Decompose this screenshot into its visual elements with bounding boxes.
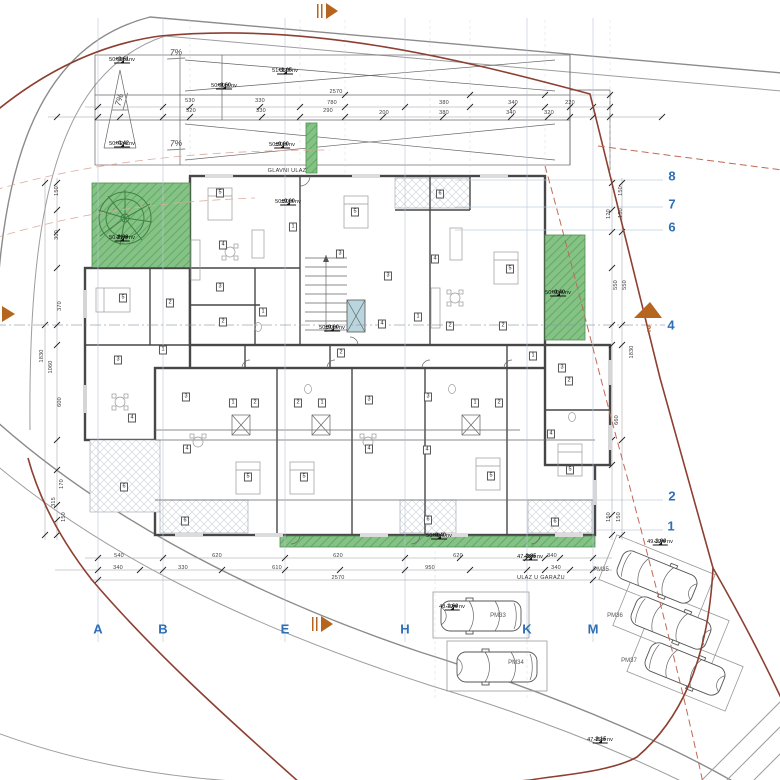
annotation-label: 2: [647, 325, 651, 334]
right-terrace: [545, 235, 585, 340]
room-number: 6: [436, 190, 444, 199]
room-number: 4: [378, 320, 386, 329]
dimension-label: 220: [565, 100, 575, 106]
dimension-label: 340: [551, 565, 561, 571]
room-number: 6: [424, 516, 432, 525]
room-number: 3: [558, 364, 566, 373]
entrance-green-strip: [306, 123, 317, 173]
dimension-label: 200: [379, 110, 389, 116]
floor-plan-drawing: [0, 0, 780, 780]
room-number: 3: [182, 393, 190, 402]
dimension-label: 950: [425, 565, 435, 571]
room-number: 6: [120, 483, 128, 492]
dimension-label: 620: [453, 553, 463, 559]
annotation-label: GLAVNI ULAZ: [268, 168, 307, 174]
room-number: 1: [229, 399, 237, 408]
room-number: 5: [566, 466, 574, 475]
parking-space-label: PM37: [621, 658, 637, 664]
dimension-label: 380: [439, 110, 449, 116]
site-floor-plan: ABEHKM8764217%7%7%+0.6150.93m nv+1.0551.…: [0, 0, 780, 780]
axis-label-B: B: [158, 622, 167, 637]
dimension-label: 1830: [39, 349, 45, 362]
parking-space-label: PM34: [508, 660, 524, 666]
dimension-label: 150: [54, 186, 60, 196]
tree-terrace: [92, 183, 190, 268]
room-number: 6: [551, 518, 559, 527]
building: [85, 123, 610, 547]
dimension-label: 290: [323, 108, 333, 114]
parking-space-label: PM35: [593, 567, 609, 573]
room-number: 1: [529, 352, 537, 361]
dimension-label: 660: [614, 415, 620, 425]
dimension-label: 2570: [329, 89, 342, 95]
room-number: 5: [351, 208, 359, 217]
axis-label-H: H: [400, 622, 409, 637]
dimension-label: 330: [256, 108, 266, 114]
parking-space-label: PM36: [607, 613, 623, 619]
room-number: 2: [565, 377, 573, 386]
room-number: 6: [181, 517, 189, 526]
dimension-label: 2570: [331, 575, 344, 581]
room-number: 1: [414, 313, 422, 322]
room-number: 1: [259, 308, 267, 317]
ramp-slope-label: 7%: [167, 138, 186, 151]
room-number: 2: [166, 299, 174, 308]
parking-space-label: PM33: [490, 613, 506, 619]
room-number: 2: [251, 399, 259, 408]
room-number: 2: [499, 322, 507, 331]
ramp-slope-label: 7%: [167, 47, 186, 60]
room-number: 4: [547, 430, 555, 439]
dimension-label: 300: [54, 230, 60, 240]
dimension-label: 610: [272, 565, 282, 571]
room-number: 5: [216, 189, 224, 198]
room-number: 5: [487, 472, 495, 481]
dimension-label: 540: [114, 553, 124, 559]
dimension-label: 1060: [48, 360, 54, 373]
room-number: 3: [114, 356, 122, 365]
room-number: 4: [128, 414, 136, 423]
axis-label-4: 4: [667, 318, 674, 333]
dimension-label: 150: [618, 186, 624, 196]
room-number: 4: [423, 446, 431, 455]
dimension-label: 340: [506, 110, 516, 116]
room-number: 4: [431, 255, 439, 264]
dimension-label: 150: [616, 512, 622, 522]
dimension-label: 340: [508, 100, 518, 106]
dimension-label: 550: [613, 280, 619, 290]
dimension-label: 530: [185, 98, 195, 104]
room-number: 3: [384, 272, 392, 281]
room-number: 4: [183, 445, 191, 454]
axis-label-2: 2: [668, 489, 675, 504]
dimension-label: 330: [178, 565, 188, 571]
room-number: 2: [337, 349, 345, 358]
axis-label-E: E: [281, 622, 290, 637]
room-number: 2: [294, 399, 302, 408]
dimension-label: 315: [51, 497, 57, 507]
dimension-label: 550: [622, 280, 628, 290]
dimension-label: 620: [333, 553, 343, 559]
dimension-label: 150: [61, 512, 67, 522]
room-number: 5: [506, 265, 514, 274]
room-number: 3: [424, 393, 432, 402]
dimension-label: 520: [186, 108, 196, 114]
dimension-label: 780: [327, 100, 337, 106]
dimension-label: 340: [113, 565, 123, 571]
room-number: 1: [289, 223, 297, 232]
room-number: 1: [159, 346, 167, 355]
room-number: 2: [446, 322, 454, 331]
room-number: 3: [336, 250, 344, 259]
room-number: 1: [318, 399, 326, 408]
dimension-label: 620: [212, 553, 222, 559]
dimension-label: 170: [59, 479, 65, 489]
dimension-label: 320: [544, 110, 554, 116]
axis-label-6: 6: [668, 220, 675, 235]
dimension-label: 120: [606, 209, 612, 219]
room-number: 5: [300, 473, 308, 482]
axis-label-7: 7: [668, 197, 675, 212]
room-number: 1: [471, 399, 479, 408]
room-number: 4: [219, 241, 227, 250]
room-number: 4: [365, 445, 373, 454]
dimension-label: 600: [57, 397, 63, 407]
axis-label-1: 1: [667, 519, 674, 534]
entrance-ramp: [95, 55, 610, 170]
dimension-label: 150: [606, 512, 612, 522]
room-number: 3: [365, 396, 373, 405]
dimension-label: 370: [57, 301, 63, 311]
room-number: 2: [495, 399, 503, 408]
room-number: 5: [244, 473, 252, 482]
annotation-label: ULAZ U GARAŽU: [517, 575, 565, 581]
room-number: 5: [119, 294, 127, 303]
dimension-label: 340: [547, 553, 557, 559]
axis-label-K: K: [522, 622, 531, 637]
dimension-label: 380: [439, 100, 449, 106]
axis-label-M: M: [588, 622, 599, 637]
room-number: 2: [219, 318, 227, 327]
axis-label-A: A: [93, 622, 102, 637]
dimension-label: 1830: [629, 345, 635, 358]
room-number: 3: [216, 283, 224, 292]
dimension-label: 150: [618, 208, 624, 218]
axis-label-8: 8: [668, 169, 675, 184]
dimension-label: 330: [255, 98, 265, 104]
